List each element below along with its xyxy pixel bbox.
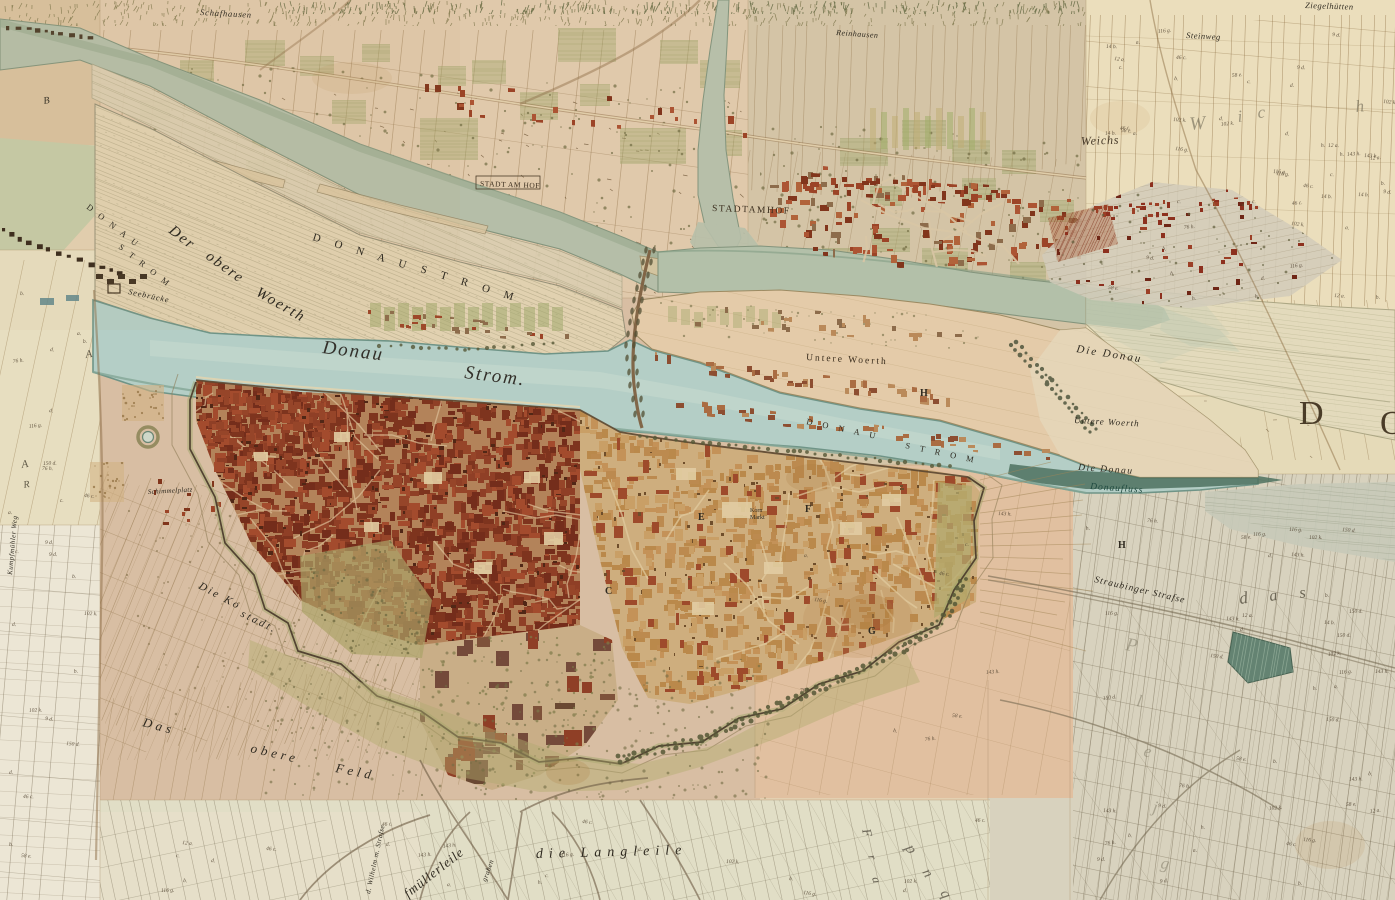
svg-text:9 d.: 9 d.	[45, 540, 53, 546]
svg-text:c.: c.	[1177, 199, 1181, 205]
svg-text:76 h.: 76 h.	[925, 736, 937, 743]
svg-text:14 b.: 14 b.	[1105, 130, 1116, 137]
svg-text:h.: h.	[893, 728, 898, 734]
svg-text:102 k.: 102 k.	[1309, 535, 1322, 541]
svg-text:d.: d.	[9, 770, 13, 776]
svg-text:h: h	[1355, 96, 1365, 116]
svg-text:58 e.: 58 e.	[1108, 285, 1119, 292]
svg-text:a.: a.	[77, 331, 81, 337]
svg-text:58 e.: 58 e.	[1232, 72, 1243, 79]
svg-text:46 c.: 46 c.	[582, 818, 593, 826]
svg-text:102 k.: 102 k.	[29, 707, 43, 714]
svg-text:b.: b.	[20, 291, 24, 297]
svg-text:58 e.: 58 e.	[1241, 535, 1252, 541]
svg-text:b.: b.	[789, 876, 794, 882]
svg-text:116 g.: 116 g.	[1158, 28, 1172, 35]
svg-text:d.: d.	[50, 347, 55, 353]
svg-text:14 b.: 14 b.	[1324, 619, 1335, 626]
svg-text:143 h.: 143 h.	[1349, 775, 1363, 783]
svg-text:9 d.: 9 d.	[1332, 32, 1341, 39]
svg-text:h.: h.	[1085, 525, 1090, 532]
svg-text:46 c.: 46 c.	[382, 820, 393, 828]
svg-text:d.: d.	[903, 888, 907, 894]
svg-text:102 k.: 102 k.	[1383, 99, 1395, 106]
svg-text:a.: a.	[804, 553, 808, 559]
svg-text:c.: c.	[60, 498, 64, 504]
svg-text:14 b.: 14 b.	[1358, 191, 1369, 198]
svg-text:h.: h.	[1321, 143, 1325, 149]
svg-text:c.: c.	[1247, 79, 1251, 85]
svg-text:c.: c.	[15, 549, 19, 555]
svg-text:a.: a.	[1345, 225, 1350, 231]
svg-text:58 e.: 58 e.	[1121, 128, 1132, 134]
svg-text:a.: a.	[1133, 131, 1138, 137]
svg-text:46 c.: 46 c.	[939, 570, 950, 578]
svg-text:F: F	[805, 504, 811, 515]
svg-text:58 e.: 58 e.	[1236, 756, 1247, 763]
svg-text:76 h.: 76 h.	[1105, 840, 1117, 847]
svg-text:58 e.: 58 e.	[1346, 802, 1357, 808]
svg-text:a.: a.	[1193, 848, 1198, 854]
svg-text:102 k.: 102 k.	[1173, 117, 1187, 124]
svg-text:12 a.: 12 a.	[1334, 293, 1345, 300]
svg-text:G: G	[868, 626, 876, 637]
svg-text:143 h.: 143 h.	[986, 668, 1000, 676]
svg-text:46 c.: 46 c.	[84, 492, 95, 500]
svg-text:9 d.: 9 d.	[1160, 878, 1169, 885]
svg-text:a.: a.	[1135, 40, 1140, 46]
svg-text:12 a.: 12 a.	[1370, 155, 1381, 162]
svg-text:102 k.: 102 k.	[84, 611, 98, 617]
svg-text:14 b.: 14 b.	[1106, 43, 1117, 50]
svg-text:116 g.: 116 g.	[1303, 837, 1317, 844]
svg-text:d.: d.	[386, 842, 390, 848]
svg-text:d.: d.	[1268, 553, 1273, 559]
svg-text:H: H	[920, 388, 928, 399]
svg-text:b.: b.	[83, 339, 87, 345]
svg-text:b.: b.	[74, 669, 79, 675]
svg-text:76 h.: 76 h.	[1184, 224, 1196, 231]
svg-text:c.: c.	[1119, 65, 1123, 71]
svg-text:a.: a.	[8, 510, 12, 516]
svg-text:102 k.: 102 k.	[1269, 805, 1283, 812]
svg-text:h.: h.	[1201, 825, 1206, 831]
svg-text:Steinweg: Steinweg	[1186, 30, 1221, 42]
svg-text:c.: c.	[1330, 172, 1334, 178]
svg-text:12 a.: 12 a.	[1328, 143, 1339, 149]
svg-text:C: C	[605, 586, 612, 597]
svg-text:46 c.: 46 c.	[266, 845, 277, 853]
svg-text:46 c.: 46 c.	[1176, 54, 1187, 61]
svg-text:143 h.: 143 h.	[418, 851, 432, 859]
svg-text:b.: b.	[1273, 759, 1277, 765]
svg-text:143 h.: 143 h.	[998, 510, 1012, 518]
svg-text:b.: b.	[1368, 771, 1373, 778]
svg-text:150 d.: 150 d.	[1337, 633, 1351, 639]
svg-text:14 b.: 14 b.	[1321, 193, 1332, 200]
svg-text:58 e.: 58 e.	[21, 853, 32, 860]
svg-text:h.: h.	[1255, 294, 1260, 300]
svg-text:116 g.: 116 g.	[161, 888, 174, 894]
svg-text:12 a.: 12 a.	[1242, 613, 1253, 619]
svg-text:Ziegelhütten: Ziegelhütten	[1305, 0, 1354, 12]
svg-text:O: O	[1380, 405, 1395, 442]
svg-text:h.: h.	[1313, 686, 1318, 692]
svg-text:b.: b.	[1128, 833, 1132, 839]
svg-text:c.: c.	[1252, 199, 1256, 205]
svg-text:Markt: Markt	[750, 515, 765, 521]
svg-text:116 g.: 116 g.	[1105, 611, 1119, 617]
svg-text:46 c.: 46 c.	[975, 817, 986, 824]
svg-text:76 h.: 76 h.	[1147, 518, 1158, 525]
svg-text:b.: b.	[1298, 881, 1302, 887]
svg-text:143 h.: 143 h.	[1226, 615, 1240, 622]
svg-text:b.: b.	[1325, 593, 1330, 599]
svg-text:d.: d.	[1285, 131, 1290, 137]
svg-text:b.: b.	[183, 878, 188, 884]
svg-text:d.: d.	[211, 858, 216, 864]
svg-text:d.: d.	[638, 847, 642, 853]
svg-text:46 c.: 46 c.	[23, 793, 34, 800]
svg-text:143 h.: 143 h.	[1375, 668, 1389, 675]
svg-text:a.: a.	[1334, 684, 1338, 690]
svg-text:76 h.: 76 h.	[1179, 783, 1190, 790]
svg-text:143 h.: 143 h.	[1347, 150, 1361, 158]
svg-text:116 g.: 116 g.	[1289, 527, 1302, 533]
svg-text:c.: c.	[176, 853, 180, 859]
svg-text:a.: a.	[447, 882, 452, 888]
svg-text:102 k.: 102 k.	[904, 879, 918, 885]
svg-text:b.: b.	[1162, 246, 1167, 252]
svg-text:143 h.: 143 h.	[1103, 807, 1117, 814]
svg-text:76 h.: 76 h.	[800, 688, 811, 694]
svg-text:9 d.: 9 d.	[1158, 803, 1167, 810]
svg-text:9 d.: 9 d.	[1383, 189, 1392, 196]
svg-text:b.: b.	[1381, 181, 1386, 187]
svg-text:116 g.: 116 g.	[1339, 669, 1353, 676]
svg-text:102 k.: 102 k.	[726, 859, 740, 865]
svg-text:9 d.: 9 d.	[1097, 857, 1105, 863]
svg-text:h.: h.	[538, 880, 543, 886]
svg-text:9 d.: 9 d.	[45, 716, 54, 723]
svg-text:b.: b.	[72, 574, 76, 580]
svg-text:116 g.: 116 g.	[1253, 531, 1267, 538]
svg-text:150 d.: 150 d.	[43, 461, 57, 467]
svg-text:h.: h.	[1192, 296, 1196, 302]
svg-text:c.: c.	[965, 542, 969, 548]
svg-text:116 g.: 116 g.	[1273, 169, 1287, 175]
svg-text:h.: h.	[9, 842, 13, 848]
svg-text:d.: d.	[1290, 83, 1294, 89]
svg-text:d.: d.	[1240, 627, 1244, 633]
svg-text:9 d.: 9 d.	[1146, 255, 1155, 262]
svg-text:46 c.: 46 c.	[1303, 182, 1314, 190]
svg-text:46 c.: 46 c.	[1286, 840, 1297, 848]
svg-text:D: D	[1299, 395, 1324, 432]
svg-text:H: H	[1118, 540, 1126, 551]
svg-text:58 e.: 58 e.	[952, 713, 963, 720]
svg-text:c.: c.	[545, 873, 549, 879]
svg-text:b.: b.	[1174, 76, 1179, 82]
svg-text:9 d.: 9 d.	[1297, 65, 1305, 71]
svg-text:b.: b.	[1375, 294, 1380, 300]
svg-text:143 h.: 143 h.	[1291, 551, 1305, 559]
svg-text:E: E	[698, 512, 705, 523]
svg-text:d.: d.	[49, 408, 54, 414]
svg-text:h.: h.	[1340, 152, 1345, 158]
svg-text:h.: h.	[1170, 271, 1175, 277]
svg-text:d.: d.	[12, 622, 16, 628]
svg-text:150 d.: 150 d.	[1349, 609, 1363, 615]
svg-text:Korn: Korn	[750, 508, 762, 514]
svg-text:9 d.: 9 d.	[49, 552, 57, 558]
svg-text:d.: d.	[1261, 276, 1266, 282]
svg-text:150 d.: 150 d.	[1326, 717, 1340, 723]
svg-text:150 d.: 150 d.	[66, 741, 80, 748]
svg-text:46 c.: 46 c.	[1292, 199, 1303, 207]
